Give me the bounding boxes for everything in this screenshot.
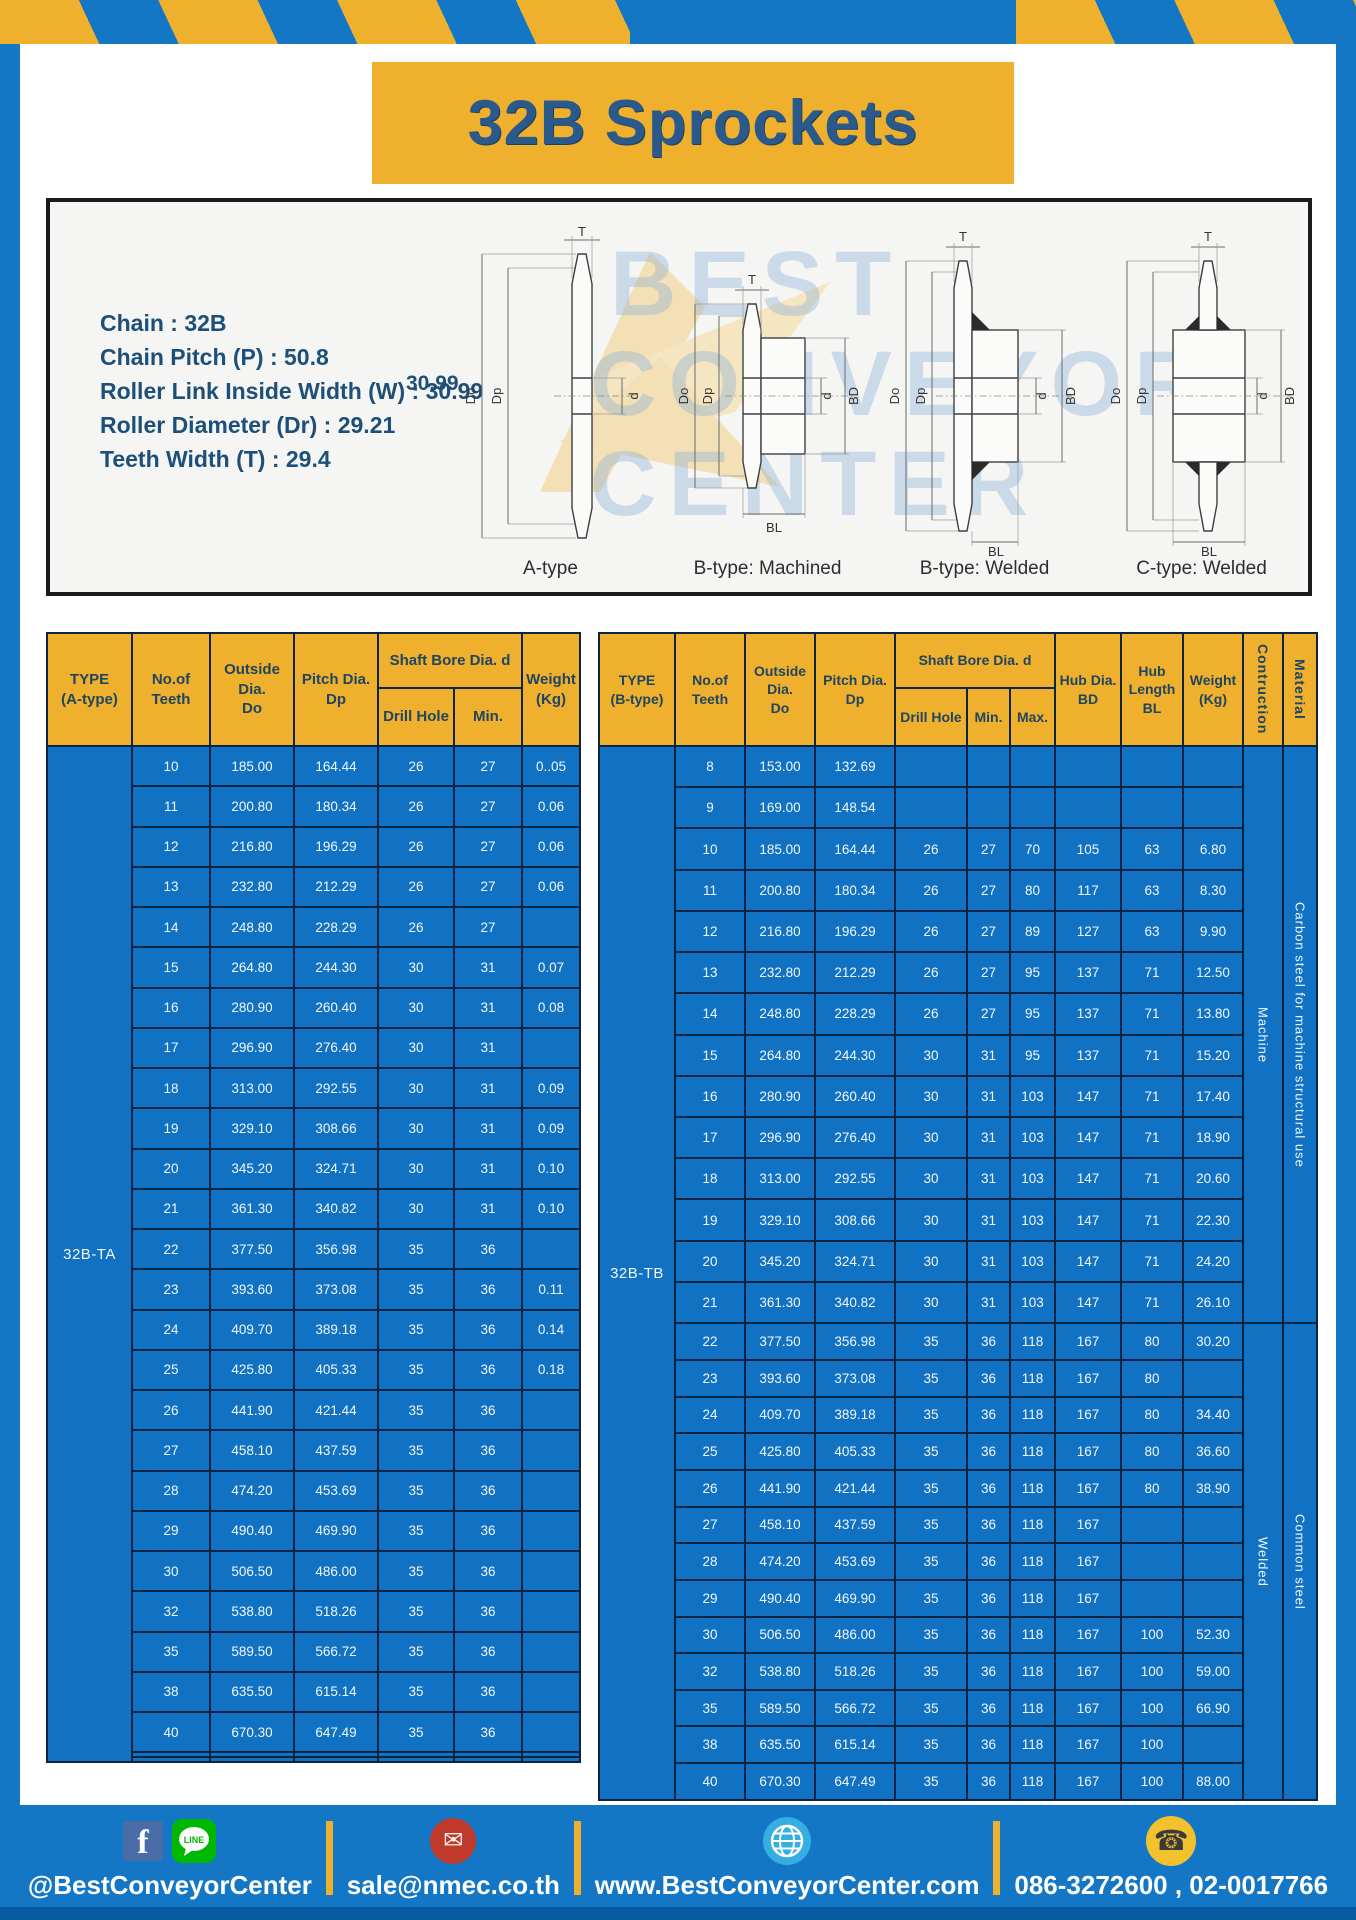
table-cell: 24 [675, 1397, 745, 1434]
table-cell: 35 [378, 1269, 454, 1309]
table-cell: 27 [967, 993, 1010, 1034]
hazard-stripes-right [1016, 0, 1356, 44]
table-cell: 36 [967, 1763, 1010, 1800]
table-cell: 34.40 [1183, 1397, 1243, 1434]
table-cell: 71 [1121, 993, 1183, 1034]
table-cell: 27 [454, 827, 522, 867]
table-row: 10185.00164.44262770105636.80 [599, 828, 1317, 869]
table-cell: 26 [895, 993, 967, 1034]
table-cell: 167 [1055, 1543, 1121, 1580]
table-cell: 324.71 [815, 1241, 895, 1282]
table-cell: 30 [895, 1241, 967, 1282]
table-cell: 248.80 [745, 993, 815, 1034]
table-cell: 71 [1121, 1035, 1183, 1076]
col-header-outside-dia: Outside Dia. Do [210, 633, 294, 746]
table-row: 15264.80244.303031951377115.20 [599, 1035, 1317, 1076]
table-cell: 36 [454, 1310, 522, 1350]
table-cell: 27 [132, 1430, 210, 1470]
page-frame-left [0, 0, 20, 1920]
table-cell: 16 [132, 988, 210, 1028]
table-cell: 345.20 [210, 1149, 294, 1189]
table-cell: 425.80 [745, 1433, 815, 1470]
table-cell: 196.29 [294, 827, 378, 867]
table-cell: 35 [378, 1591, 454, 1631]
table-row: 25425.80405.3335361181678036.60 [599, 1433, 1317, 1470]
table-cell [522, 1390, 580, 1430]
table-cell: 31 [967, 1241, 1010, 1282]
svg-text:T: T [578, 226, 586, 239]
table-cell: 313.00 [745, 1158, 815, 1199]
table-cell: 22 [675, 1323, 745, 1360]
figure-b-type-welded: Do Dp T d BD [876, 206, 1093, 590]
table-cell: 31 [967, 1282, 1010, 1324]
table-cell [294, 1757, 378, 1762]
table-cell: 167 [1055, 1763, 1121, 1800]
table-cell: 36 [967, 1690, 1010, 1727]
table-cell: 345.20 [745, 1241, 815, 1282]
table-cell: 228.29 [294, 907, 378, 947]
table-cell: 118 [1010, 1360, 1055, 1397]
table-cell: 30 [895, 1199, 967, 1240]
table-row: 32B-TB8153.00132.69MachineCarbon steel f… [599, 746, 1317, 787]
table-row: 21361.30340.8230311031477126.10 [599, 1282, 1317, 1324]
table-cell: 30 [895, 1076, 967, 1117]
table-cell: 35 [378, 1511, 454, 1551]
table-cell: 27 [967, 952, 1010, 993]
svg-text:d: d [626, 392, 641, 399]
table-cell: 308.66 [294, 1108, 378, 1148]
table-cell: 324.71 [294, 1149, 378, 1189]
col-header-drill-hole: Drill Hole [378, 688, 454, 746]
table-cell [967, 787, 1010, 828]
table-cell: 30 [378, 1028, 454, 1068]
table-cell: 31 [454, 988, 522, 1028]
table-cell: 36 [967, 1543, 1010, 1580]
table-cell: 589.50 [210, 1632, 294, 1672]
chain-spec-block: Chain : 32BChain Pitch (P) : 50.8Roller … [100, 306, 440, 476]
table-cell: 118 [1010, 1470, 1055, 1507]
table-cell: 356.98 [294, 1229, 378, 1269]
table-cell: 12 [675, 911, 745, 952]
table-cell: 15.20 [1183, 1035, 1243, 1076]
table-cell: 409.70 [210, 1310, 294, 1350]
sprocket-figures: Do Dp T d A-type [442, 206, 1310, 590]
table-cell [1183, 1360, 1243, 1397]
table-cell: 31 [967, 1158, 1010, 1199]
table-cell: 19 [132, 1108, 210, 1148]
table-cell: 329.10 [745, 1199, 815, 1240]
table-cell: 103 [1010, 1199, 1055, 1240]
table-cell: 118 [1010, 1580, 1055, 1617]
col-header-drill-hole: Drill Hole [895, 688, 967, 746]
material-cell: Common steel [1283, 1323, 1317, 1800]
table-cell: 9.90 [1183, 911, 1243, 952]
table-cell: 100 [1121, 1726, 1183, 1763]
table-cell: 518.26 [815, 1653, 895, 1690]
table-cell: 167 [1055, 1690, 1121, 1727]
table-cell: 103 [1010, 1117, 1055, 1158]
table-cell: 80 [1121, 1470, 1183, 1507]
table-cell: 35 [378, 1632, 454, 1672]
table-cell: 313.00 [210, 1068, 294, 1108]
table-cell: 35 [895, 1433, 967, 1470]
table-cell: 132.69 [815, 746, 895, 787]
table-cell: 260.40 [294, 988, 378, 1028]
table-row: 26441.90421.4435361181678038.90 [599, 1470, 1317, 1507]
figure-caption: C-type: Welded [1136, 558, 1267, 580]
table-cell: 167 [1055, 1323, 1121, 1360]
spec-line: Chain : 32B [100, 306, 440, 340]
table-cell: 103 [1010, 1076, 1055, 1117]
svg-text:BD: BD [1282, 387, 1297, 405]
table-cell: 29 [132, 1511, 210, 1551]
table-cell: 24 [132, 1310, 210, 1350]
table-cell: 117 [1055, 870, 1121, 911]
table-cell [1121, 787, 1183, 828]
table-cell: 25 [132, 1350, 210, 1390]
table-cell: 36 [454, 1511, 522, 1551]
table-cell: 0..05 [522, 746, 580, 786]
svg-text:T: T [1204, 229, 1212, 244]
table-cell: 30 [132, 1551, 210, 1591]
table-cell: 36 [967, 1397, 1010, 1434]
table-cell: 635.50 [745, 1726, 815, 1763]
table-cell: 63 [1121, 911, 1183, 952]
table-cell: 36 [454, 1390, 522, 1430]
table-cell: 27 [454, 867, 522, 907]
col-header-shaft-bore: Shaft Bore Dia. d [378, 633, 522, 688]
table-cell [1183, 787, 1243, 828]
table-cell: 31 [967, 1117, 1010, 1158]
table-cell: 103 [1010, 1241, 1055, 1282]
table-cell: 35 [378, 1471, 454, 1511]
col-header-hub-dia: Hub Dia. BD [1055, 633, 1121, 746]
table-cell: 30 [895, 1282, 967, 1324]
phone-icon: ☎ [1146, 1816, 1196, 1866]
table-cell: 167 [1055, 1617, 1121, 1654]
table-cell: 474.20 [745, 1543, 815, 1580]
sprocket-diagram-b-machined-icon: Do Dp T d BD [659, 226, 876, 556]
table-row: 9169.00148.54 [599, 787, 1317, 828]
table-cell: 244.30 [815, 1035, 895, 1076]
table-cell: 393.60 [745, 1360, 815, 1397]
type-label-cell: 32B-TB [599, 746, 675, 1800]
sprocket-diagram-a-icon: Do Dp T d [442, 226, 659, 556]
table-cell: 118 [1010, 1617, 1055, 1654]
social-handle: @BestConveyorCenter [28, 1870, 312, 1901]
table-cell: 647.49 [294, 1712, 378, 1752]
table-cell [522, 1430, 580, 1470]
table-cell: 14 [675, 993, 745, 1034]
table-cell: 216.80 [210, 827, 294, 867]
table-cell: 71 [1121, 1158, 1183, 1199]
table-row: 32B-TA10185.00164.4426270..05 [47, 746, 580, 786]
table-cell: 615.14 [294, 1672, 378, 1712]
svg-text:BD: BD [846, 387, 861, 405]
svg-text:Dp: Dp [913, 388, 928, 405]
table-cell: 127 [1055, 911, 1121, 952]
table-cell: 409.70 [745, 1397, 815, 1434]
table-cell: 16 [675, 1076, 745, 1117]
table-row: 16280.90260.4030311031477117.40 [599, 1076, 1317, 1117]
table-cell: 0.09 [522, 1108, 580, 1148]
table-cell: 40 [132, 1712, 210, 1752]
svg-text:d: d [819, 392, 834, 399]
table-cell: 118 [1010, 1653, 1055, 1690]
title-banner: 32B Sprockets [372, 62, 1014, 184]
table-cell: 63 [1121, 870, 1183, 911]
construction-cell: Machine [1243, 746, 1283, 1323]
footer-website-group: www.BestConveyorCenter.com [595, 1815, 980, 1901]
table-cell: 148.54 [815, 787, 895, 828]
table-cell: 506.50 [210, 1551, 294, 1591]
table-cell: 260.40 [815, 1076, 895, 1117]
table-cell: 153.00 [745, 746, 815, 787]
table-cell: 22 [132, 1229, 210, 1269]
table-cell [522, 1712, 580, 1752]
table-cell: 71 [1121, 1117, 1183, 1158]
table-cell: 167 [1055, 1397, 1121, 1434]
table-cell: 264.80 [745, 1035, 815, 1076]
table-cell: 421.44 [815, 1470, 895, 1507]
col-header-min: Min. [967, 688, 1010, 746]
table-cell: 18 [132, 1068, 210, 1108]
table-cell: 0.10 [522, 1149, 580, 1189]
table-cell: 118 [1010, 1763, 1055, 1800]
table-cell: 0.09 [522, 1068, 580, 1108]
table-cell: 38.90 [1183, 1470, 1243, 1507]
table-cell: 80 [1121, 1323, 1183, 1360]
table-cell [1183, 1507, 1243, 1544]
table-cell: 36 [967, 1726, 1010, 1763]
table-cell: 118 [1010, 1433, 1055, 1470]
table-cell: 32 [675, 1653, 745, 1690]
table-cell: 35 [378, 1390, 454, 1430]
table-cell: 36 [454, 1229, 522, 1269]
table-cell: 80 [1121, 1360, 1183, 1397]
table-cell: 36 [454, 1551, 522, 1591]
page-frame-right [1336, 0, 1356, 1920]
table-cell: 0.11 [522, 1269, 580, 1309]
table-cell [522, 1591, 580, 1631]
table-cell: 296.90 [745, 1117, 815, 1158]
table-row: 35589.50566.72353611816710066.90 [599, 1690, 1317, 1727]
table-cell: 31 [454, 1028, 522, 1068]
table-cell: 30 [378, 947, 454, 987]
table-cell: 405.33 [294, 1350, 378, 1390]
table-cell: 167 [1055, 1360, 1121, 1397]
table-cell: 32 [132, 1591, 210, 1631]
table-cell: 35 [378, 1229, 454, 1269]
table-cell: 17 [675, 1117, 745, 1158]
table-cell: 35 [895, 1470, 967, 1507]
table-row: 19329.10308.6630311031477122.30 [599, 1199, 1317, 1240]
col-header-pitch-dia: Pitch Dia. Dp [815, 633, 895, 746]
table-cell [1183, 746, 1243, 787]
table-row: 22377.50356.9835361181678030.20WeldedCom… [599, 1323, 1317, 1360]
table-cell: 377.50 [210, 1229, 294, 1269]
table-cell [1121, 746, 1183, 787]
table-cell: 308.66 [815, 1199, 895, 1240]
figure-caption: B-type: Welded [920, 558, 1050, 580]
table-cell: 100 [1121, 1690, 1183, 1727]
table-cell: 71 [1121, 1241, 1183, 1282]
table-cell: 36 [967, 1323, 1010, 1360]
table-cell: 248.80 [210, 907, 294, 947]
table-cell: 35 [132, 1632, 210, 1672]
hazard-stripes-left [0, 0, 630, 44]
table-row: 20345.20324.7130311031477124.20 [599, 1241, 1317, 1282]
table-cell: 30 [378, 1068, 454, 1108]
table-cell: 30 [378, 988, 454, 1028]
table-cell [132, 1757, 210, 1762]
table-cell: 453.69 [294, 1471, 378, 1511]
table-cell: 40 [675, 1763, 745, 1800]
table-a-type: TYPE (A-type) No.of Teeth Outside Dia. D… [46, 632, 580, 1763]
table-cell: 36 [454, 1632, 522, 1672]
table-cell: 66.90 [1183, 1690, 1243, 1727]
table-cell: 0.14 [522, 1310, 580, 1350]
table-cell: 103 [1010, 1158, 1055, 1199]
globe-icon [762, 1816, 812, 1866]
figure-c-type-welded: Do Dp T d [1093, 206, 1310, 590]
table-b-body: 32B-TB8153.00132.69MachineCarbon steel f… [599, 746, 1317, 1800]
spec-line: Chain Pitch (P) : 50.8 [100, 340, 440, 374]
table-cell: 20 [132, 1149, 210, 1189]
table-cell: 71 [1121, 1282, 1183, 1324]
spec-line: Roller Diameter (Dr) : 29.21 [100, 408, 440, 442]
table-cell: 29 [675, 1580, 745, 1617]
table-cell: 164.44 [815, 828, 895, 869]
table-cell [1121, 1580, 1183, 1617]
table-cell: 15 [675, 1035, 745, 1076]
table-cell: 26 [378, 746, 454, 786]
table-cell: 35 [895, 1323, 967, 1360]
table-cell: 244.30 [294, 947, 378, 987]
table-cell: 35 [895, 1763, 967, 1800]
table-cell: 25 [675, 1433, 745, 1470]
table-cell: 63 [1121, 828, 1183, 869]
table-cell: 36 [454, 1591, 522, 1631]
table-cell: 17 [132, 1028, 210, 1068]
table-cell: 35 [378, 1310, 454, 1350]
website-url: www.BestConveyorCenter.com [595, 1870, 980, 1901]
table-cell [522, 907, 580, 947]
table-cell: 26 [132, 1390, 210, 1430]
table-row: 40670.30647.49353611816710088.00 [599, 1763, 1317, 1800]
table-cell: 212.29 [294, 867, 378, 907]
table-cell: 100 [1121, 1617, 1183, 1654]
table-cell: 26 [895, 870, 967, 911]
table-cell: 196.29 [815, 911, 895, 952]
svg-text:Dp: Dp [1134, 388, 1149, 405]
table-cell: 35 [895, 1543, 967, 1580]
table-cell: 118 [1010, 1726, 1055, 1763]
sprocket-diagram-b-welded-icon: Do Dp T d BD [876, 226, 1093, 556]
table-cell: 26 [895, 828, 967, 869]
table-cell: 26 [675, 1470, 745, 1507]
table-cell: 8 [675, 746, 745, 787]
table-cell: 35 [378, 1350, 454, 1390]
table-cell [210, 1757, 294, 1762]
datasheet-page: 32B Sprockets BESTCONVEYORCENTER Chain :… [0, 0, 1356, 1920]
table-cell: 12.50 [1183, 952, 1243, 993]
table-cell: 361.30 [210, 1189, 294, 1229]
col-header-shaft-bore: Shaft Bore Dia. d [895, 633, 1055, 688]
table-cell: 200.80 [745, 870, 815, 911]
table-cell [895, 787, 967, 828]
table-cell: 15 [132, 947, 210, 987]
table-cell: 212.29 [815, 952, 895, 993]
table-cell: 147 [1055, 1199, 1121, 1240]
table-cell: 17.40 [1183, 1076, 1243, 1117]
table-cell: 36 [454, 1672, 522, 1712]
table-cell [967, 746, 1010, 787]
table-cell [454, 1757, 522, 1762]
col-header-type: TYPE (A-type) [47, 633, 132, 746]
table-cell: 20.60 [1183, 1158, 1243, 1199]
table-cell: 538.80 [210, 1591, 294, 1631]
table-cell [522, 1632, 580, 1672]
table-cell [1010, 787, 1055, 828]
table-cell: 71 [1121, 952, 1183, 993]
table-cell: 11 [132, 786, 210, 826]
table-cell: 26 [378, 907, 454, 947]
table-cell: 469.90 [294, 1511, 378, 1551]
table-cell: 0.08 [522, 988, 580, 1028]
table-cell: 361.30 [745, 1282, 815, 1324]
table-cell: 95 [1010, 993, 1055, 1034]
table-cell [522, 1551, 580, 1591]
table-cell: 0.18 [522, 1350, 580, 1390]
table-cell: 89 [1010, 911, 1055, 952]
table-row: 17296.90276.4030311031477118.90 [599, 1117, 1317, 1158]
table-cell: 21 [132, 1189, 210, 1229]
table-cell: 30 [378, 1108, 454, 1148]
table-cell: 11 [675, 870, 745, 911]
table-cell: 35 [895, 1726, 967, 1763]
table-b-header: TYPE (B-type) No.of Teeth Outside Dia. D… [599, 633, 1317, 746]
svg-text:Do: Do [676, 388, 691, 405]
table-row: 29490.40469.903536118167 [599, 1580, 1317, 1617]
table-cell [1121, 1507, 1183, 1544]
table-cell: 147 [1055, 1282, 1121, 1324]
table-cell: 30 [378, 1149, 454, 1189]
email-icon: ✉ [430, 1818, 476, 1864]
table-cell: 30 [675, 1617, 745, 1654]
table-cell: 100 [1121, 1653, 1183, 1690]
table-cell: 538.80 [745, 1653, 815, 1690]
footer-email-group: ✉ sale@nmec.co.th [347, 1815, 560, 1901]
table-cell: 118 [1010, 1690, 1055, 1727]
table-cell: 26 [378, 786, 454, 826]
spec-line: Teeth Width (T) : 29.4 [100, 442, 440, 476]
table-cell: 393.60 [210, 1269, 294, 1309]
table-cell: 340.82 [815, 1282, 895, 1324]
svg-text:T: T [959, 229, 967, 244]
table-cell: 276.40 [815, 1117, 895, 1158]
table-cell: 80 [1121, 1397, 1183, 1434]
footer-divider [574, 1821, 581, 1895]
table-cell: 147 [1055, 1158, 1121, 1199]
table-cell [1055, 787, 1121, 828]
spec-line: Roller Link Inside Width (W) : 30.99 [100, 374, 440, 408]
table-cell [1055, 746, 1121, 787]
table-cell: 566.72 [815, 1690, 895, 1727]
table-cell: 118 [1010, 1323, 1055, 1360]
table-cell: 13 [675, 952, 745, 993]
svg-text:Dp: Dp [489, 388, 504, 405]
